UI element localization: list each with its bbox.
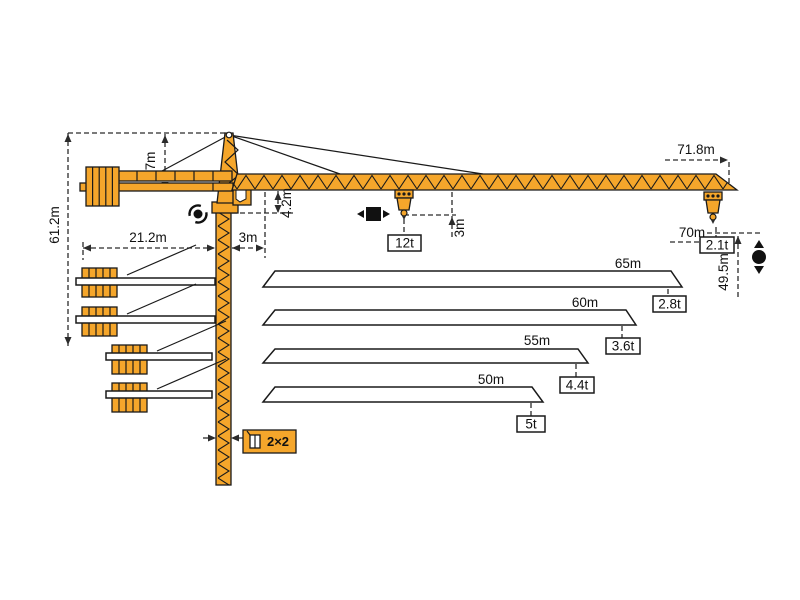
jib-variant-capacity: 4.4t [566,378,589,393]
ballast-config-3 [106,321,226,374]
hoist-up-down-icon [752,240,766,274]
jib-variant-50m: 50m 5t [263,372,545,432]
jib-root-offset-label: 3m [239,230,258,245]
jib-variant-capacity: 5t [525,417,537,432]
hook-mid [401,210,407,216]
hook-height-label: 49.5m [716,253,731,291]
ballast-config-1 [76,245,215,297]
max-radius-label: 71.8m [677,142,715,157]
pendant-cables [162,135,483,174]
tip-capacity-label: 2.1t [706,238,729,253]
jib-variant-length: 50m [478,372,504,387]
slew-rotation-icon [187,203,209,225]
counterweight-block [86,167,119,206]
jib-variant-length: 65m [615,256,641,271]
max-capacity-label: 12t [395,236,414,251]
max-capacity-callout: 12t [388,235,421,251]
jib-variant-capacity: 3.6t [612,339,635,354]
tower-mast [212,202,238,485]
trolley-tip [704,192,722,224]
diagram-canvas: 65m 2.8t 60m 3.6t 55m 4.4t 50m 5t [0,0,800,600]
counter-jib [80,167,233,206]
counter-jib-radius-label: 21.2m [129,230,167,245]
hook-tip [710,214,716,220]
hook-to-jib-label: 3m [452,219,467,238]
jib-variant-capacity: 2.8t [658,297,681,312]
total-height-label: 61.2m [47,206,62,244]
jib-variant-length: 60m [572,295,598,310]
jib-variant-60m: 60m 3.6t [263,295,640,354]
trolley-travel-icon [357,207,390,221]
jib-variant-length: 55m [524,333,550,348]
apex-pin [226,132,232,138]
mast-section-label: 2×2 [267,434,289,449]
trolley-mid [395,190,413,220]
jib-depth-label: 4.2m [279,188,294,218]
jib [232,174,737,190]
jib-variant-55m: 55m 4.4t [263,333,594,393]
max-hook-radius-label: 70m [679,225,705,240]
head-height-label: 7m [143,152,158,171]
jib-variant-65m: 65m 2.8t [263,256,686,312]
crane-load-diagram: 65m 2.8t 60m 3.6t 55m 4.4t 50m 5t [0,0,800,600]
